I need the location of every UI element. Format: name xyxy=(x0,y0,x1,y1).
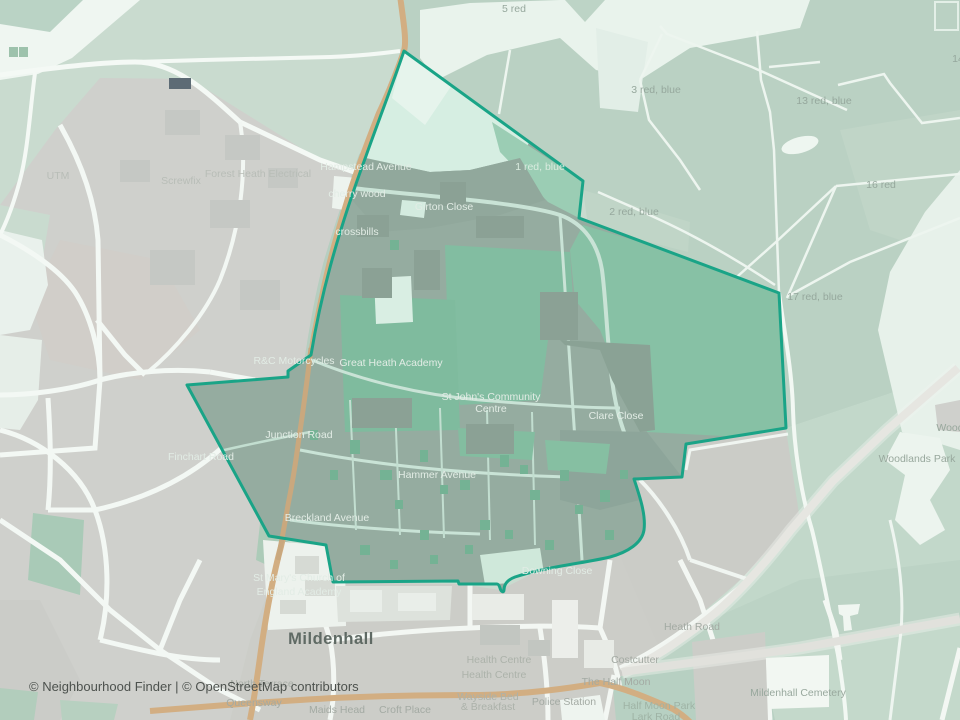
svg-text:Forest Heath Electrical: Forest Heath Electrical xyxy=(205,168,311,180)
svg-text:Centre: Centre xyxy=(475,403,507,415)
svg-text:Mildenhall: Mildenhall xyxy=(288,630,374,648)
svg-text:13 red, blue: 13 red, blue xyxy=(796,95,852,107)
svg-text:UTM: UTM xyxy=(47,170,70,182)
svg-text:Wood: Wood xyxy=(936,422,960,434)
svg-text:Lark Road: Lark Road xyxy=(632,711,681,720)
svg-text:16 red: 16 red xyxy=(866,179,896,191)
svg-text:Hampstead Avenue: Hampstead Avenue xyxy=(320,161,412,173)
svg-text:Great Heath Academy: Great Heath Academy xyxy=(339,357,443,369)
svg-text:5 red: 5 red xyxy=(502,3,526,15)
svg-text:Breckland Avenue: Breckland Avenue xyxy=(285,512,370,524)
svg-text:3 red, blue: 3 red, blue xyxy=(631,84,681,96)
svg-text:© Neighbourhood Finder | © Ope: © Neighbourhood Finder | © OpenStreetMap… xyxy=(29,679,359,694)
svg-text:Downing Close: Downing Close xyxy=(522,565,593,577)
svg-text:Clare Close: Clare Close xyxy=(589,410,644,422)
svg-text:17 red, blue: 17 red, blue xyxy=(787,291,843,303)
svg-text:Croft Place: Croft Place xyxy=(379,704,431,716)
svg-text:Woodlands Park: Woodlands Park xyxy=(879,453,957,465)
svg-text:Girton Close: Girton Close xyxy=(415,201,474,213)
svg-text:Health Centre: Health Centre xyxy=(462,669,527,681)
svg-text:Screwfix: Screwfix xyxy=(161,175,201,187)
svg-text:Maids Head: Maids Head xyxy=(309,704,365,716)
svg-text:& Breakfast: & Breakfast xyxy=(461,701,515,713)
svg-text:Police Station: Police Station xyxy=(532,696,596,708)
svg-text:14: 14 xyxy=(952,53,960,65)
svg-text:1 red, blue: 1 red, blue xyxy=(515,161,565,173)
svg-text:Health Centre: Health Centre xyxy=(467,654,532,666)
svg-text:St Mary's Church of: St Mary's Church of xyxy=(253,572,345,584)
svg-text:England Academy: England Academy xyxy=(257,586,342,598)
svg-text:St John's Community: St John's Community xyxy=(442,391,542,403)
svg-text:Queensway: Queensway xyxy=(226,697,282,709)
svg-text:R&C Motorcycles: R&C Motorcycles xyxy=(253,355,334,367)
svg-text:crossbills: crossbills xyxy=(335,226,378,238)
svg-text:Costcutter: Costcutter xyxy=(611,654,659,666)
svg-text:Heath Road: Heath Road xyxy=(664,621,720,633)
svg-text:Hammer Avenue: Hammer Avenue xyxy=(398,469,476,481)
svg-text:Finchart Road: Finchart Road xyxy=(168,451,234,463)
svg-text:The Half Moon: The Half Moon xyxy=(582,676,651,688)
svg-text:2 red, blue: 2 red, blue xyxy=(609,206,659,218)
svg-text:Mildenhall Cemetery: Mildenhall Cemetery xyxy=(750,687,846,699)
svg-text:Junction Road: Junction Road xyxy=(265,429,332,441)
svg-text:cherry wood: cherry wood xyxy=(328,188,385,200)
